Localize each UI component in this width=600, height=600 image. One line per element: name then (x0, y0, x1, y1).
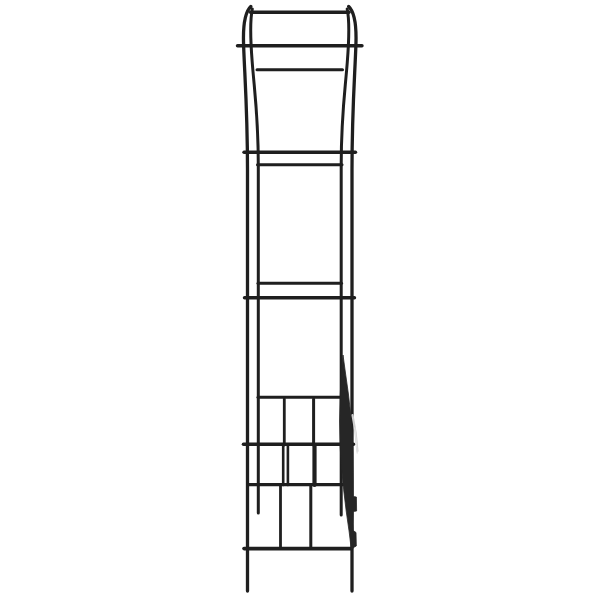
product-photo (0, 0, 600, 600)
garden-arch-illustration (0, 0, 600, 600)
photo-background (0, 0, 600, 600)
